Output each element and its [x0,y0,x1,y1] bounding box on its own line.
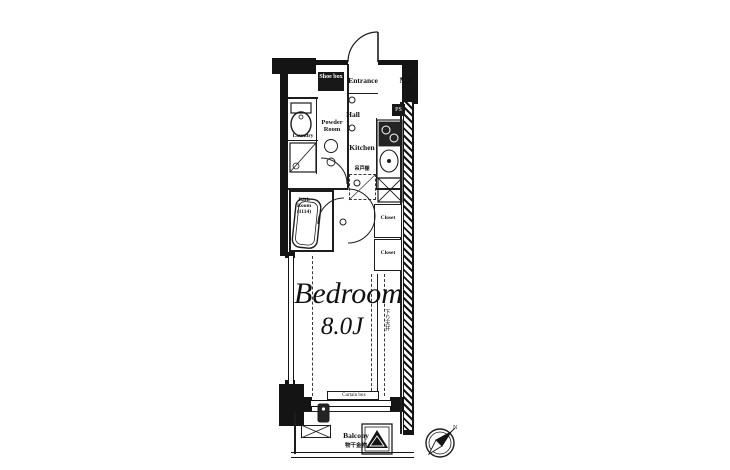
bedroom-door-arc-upper [348,189,375,216]
entrance-door-arc [348,32,378,62]
bath-room-size: (1114) [291,210,317,216]
toilet-fixture [291,103,311,136]
hanging-cupboard-diagonal [349,174,376,200]
hall-label: Hall [344,111,362,119]
water-heater [318,404,329,422]
entrance-label: Entrance [346,77,380,85]
bedroom-size-label: 8.0J [308,314,376,340]
bath-room-label: Bath Room (1114) [291,198,317,215]
meter-box-label: MB [395,77,417,85]
compass-icon: N [426,425,458,457]
powder-room-label: Powder Room [317,120,347,134]
shoe-box-label: Shoe box [319,74,342,80]
hanging-cupboard-label: 吊戸棚 [347,167,377,172]
laundry-label: Laundry [290,134,316,140]
kitchen-label: Kitchen [345,144,379,152]
closet-upper-label: Closet [374,216,402,222]
closet-lower-label: Closet [374,251,402,257]
bedroom-door-arc-lower [348,216,375,243]
powder-door-arc [321,158,347,184]
washer-space [290,143,316,172]
compass-north-label: N [453,425,458,431]
balcony-label: Balcony [330,432,382,440]
pipe-space-box: PS [392,104,405,116]
ac-unit-cross [301,425,331,438]
refrigerator-space [378,178,402,202]
shoe-box: Shoe box [318,72,344,91]
bath-room-name: Bath Room [291,198,317,210]
bedroom-label: Bedroom [294,278,390,310]
fixtures-layer: N [0,0,730,470]
lowered-ceiling-label: 下り天井 [383,298,389,342]
floor-plan-canvas: Curtain box [0,0,730,470]
balcony-note-label: 物干金物 [332,444,380,450]
kitchen-counter [377,120,402,178]
pipe-space-label: PS [395,107,402,113]
